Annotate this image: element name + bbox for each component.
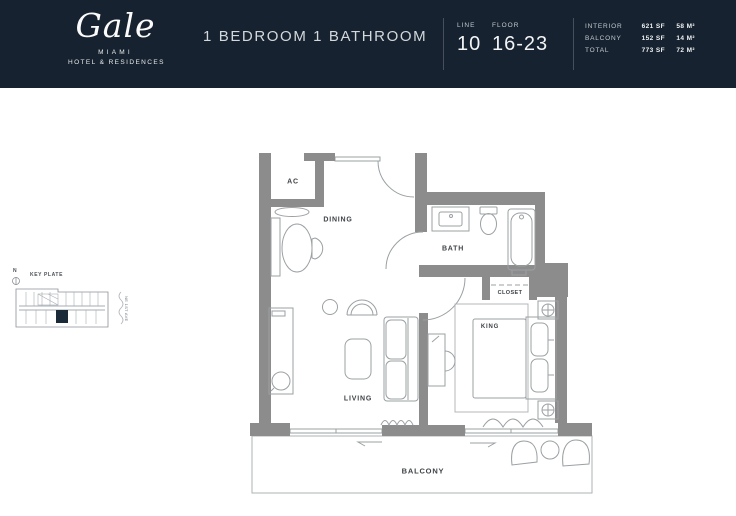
toilet — [480, 207, 497, 235]
north-label: N — [13, 268, 17, 274]
sofa — [384, 317, 418, 401]
street-name-label: NE 1ST AVE — [124, 296, 129, 322]
coffee-table — [345, 339, 371, 379]
desk — [428, 334, 455, 386]
north-compass-icon — [13, 277, 20, 285]
room-label-bath: BATH — [442, 246, 464, 253]
media-console — [269, 308, 293, 394]
walls — [250, 153, 592, 436]
room-label-king: KING — [481, 324, 499, 330]
room-label-living: LIVING — [344, 396, 372, 403]
floorplan-drawing — [0, 0, 736, 516]
room-label-balcony: BALCONY — [402, 467, 445, 476]
room-label-closet: CLOSET — [498, 290, 523, 296]
keyplate-title: KEY PLATE — [30, 272, 63, 278]
bedroom-door-arc — [423, 278, 465, 320]
keyplate-street-squiggle — [119, 292, 123, 324]
bath-door-arc — [386, 232, 423, 269]
key-plate — [13, 277, 124, 327]
balcony-chairs — [512, 440, 590, 466]
room-label-ac: AC — [287, 179, 299, 186]
floorplan-sheet: { "header": { "logo": { "name": "Gale", … — [0, 0, 736, 516]
entry-door-arc — [378, 161, 414, 197]
slider-arrows — [358, 442, 495, 447]
side-table — [323, 300, 338, 315]
dining-table — [282, 224, 323, 272]
bath-vanity — [432, 207, 469, 231]
dining-chair — [312, 238, 323, 259]
desk-chair — [445, 351, 455, 371]
balcony-outline — [252, 436, 592, 493]
room-label-dining: DINING — [323, 217, 352, 224]
balcony-table — [541, 441, 559, 459]
keyplate-highlighted-unit — [56, 310, 68, 323]
lounge-chair — [347, 300, 377, 315]
